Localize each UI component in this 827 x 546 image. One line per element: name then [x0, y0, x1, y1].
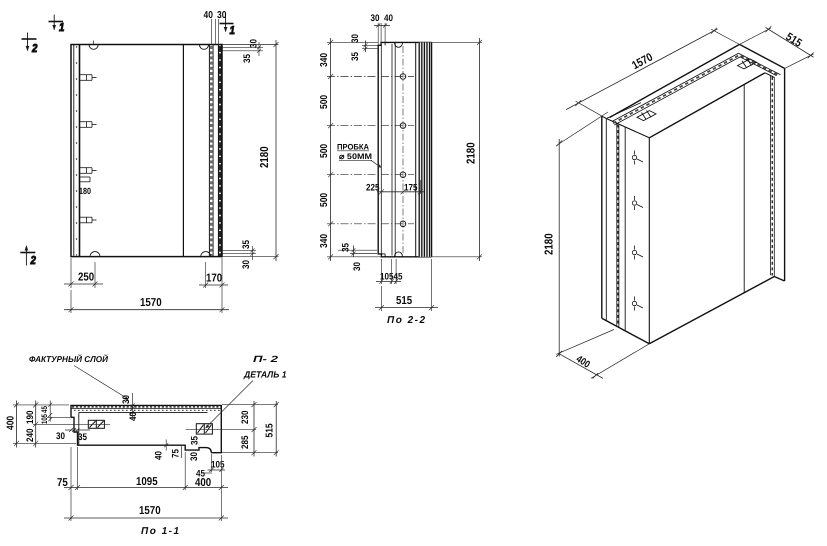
svg-text:500: 500 — [319, 193, 330, 207]
svg-text:1570: 1570 — [140, 297, 162, 309]
svg-text:340: 340 — [319, 234, 330, 248]
svg-text:30: 30 — [249, 39, 260, 48]
svg-text:500: 500 — [319, 95, 330, 109]
svg-text:2180: 2180 — [259, 146, 271, 168]
svg-text:30: 30 — [121, 395, 132, 404]
svg-text:По 2-2: По 2-2 — [387, 315, 427, 326]
svg-text:515: 515 — [783, 31, 804, 50]
svg-text:2180: 2180 — [544, 233, 556, 255]
svg-text:40: 40 — [128, 412, 139, 421]
svg-text:35: 35 — [350, 51, 361, 61]
svg-text:340: 340 — [319, 53, 330, 67]
svg-text:240: 240 — [25, 429, 36, 443]
svg-text:ПРОБКА: ПРОБКА — [337, 143, 369, 152]
svg-text:30: 30 — [189, 452, 200, 461]
svg-text:2180: 2180 — [466, 142, 478, 164]
svg-text:500: 500 — [319, 144, 330, 158]
svg-text:30: 30 — [241, 260, 252, 269]
svg-text:75: 75 — [171, 448, 182, 458]
svg-text:По 1-1: По 1-1 — [141, 526, 181, 537]
svg-text:40: 40 — [384, 13, 393, 24]
svg-text:400: 400 — [195, 477, 211, 489]
svg-text:105: 105 — [40, 414, 49, 424]
svg-text:400: 400 — [574, 354, 592, 371]
svg-text:30: 30 — [352, 262, 363, 271]
svg-text:2: 2 — [31, 43, 38, 55]
svg-text:230: 230 — [240, 411, 251, 425]
svg-text:400: 400 — [6, 416, 17, 430]
svg-text:35: 35 — [241, 239, 252, 249]
svg-text:190: 190 — [25, 411, 36, 425]
svg-text:45: 45 — [40, 406, 49, 413]
svg-text:ФАКТУРНЫЙ СЛОЙ: ФАКТУРНЫЙ СЛОЙ — [29, 354, 109, 364]
svg-text:35: 35 — [190, 435, 201, 445]
svg-text:2: 2 — [30, 255, 37, 267]
svg-text:30: 30 — [350, 34, 361, 43]
svg-text:105: 105 — [211, 460, 225, 471]
svg-text:250: 250 — [78, 272, 94, 284]
svg-text:30: 30 — [56, 431, 65, 442]
svg-text:1095: 1095 — [136, 476, 158, 488]
svg-text:40: 40 — [154, 451, 165, 460]
svg-text:1: 1 — [59, 22, 64, 34]
svg-text:515: 515 — [265, 423, 276, 437]
svg-text:45: 45 — [394, 272, 404, 283]
svg-text:ДЕТАЛЬ 1: ДЕТАЛЬ 1 — [243, 370, 286, 380]
svg-text:1: 1 — [230, 25, 235, 37]
svg-text:285: 285 — [240, 435, 251, 449]
svg-text:35: 35 — [78, 432, 88, 443]
svg-text:П- 2: П- 2 — [253, 354, 278, 364]
svg-text:35: 35 — [341, 242, 352, 252]
svg-text:1570: 1570 — [139, 505, 161, 517]
svg-text:35: 35 — [242, 53, 253, 63]
svg-text:180: 180 — [79, 186, 91, 196]
svg-text:170: 170 — [206, 273, 222, 285]
svg-text:75: 75 — [57, 477, 68, 489]
svg-text:⌀ 50ММ: ⌀ 50ММ — [339, 152, 372, 161]
svg-text:515: 515 — [396, 295, 413, 307]
svg-text:30: 30 — [371, 13, 380, 24]
